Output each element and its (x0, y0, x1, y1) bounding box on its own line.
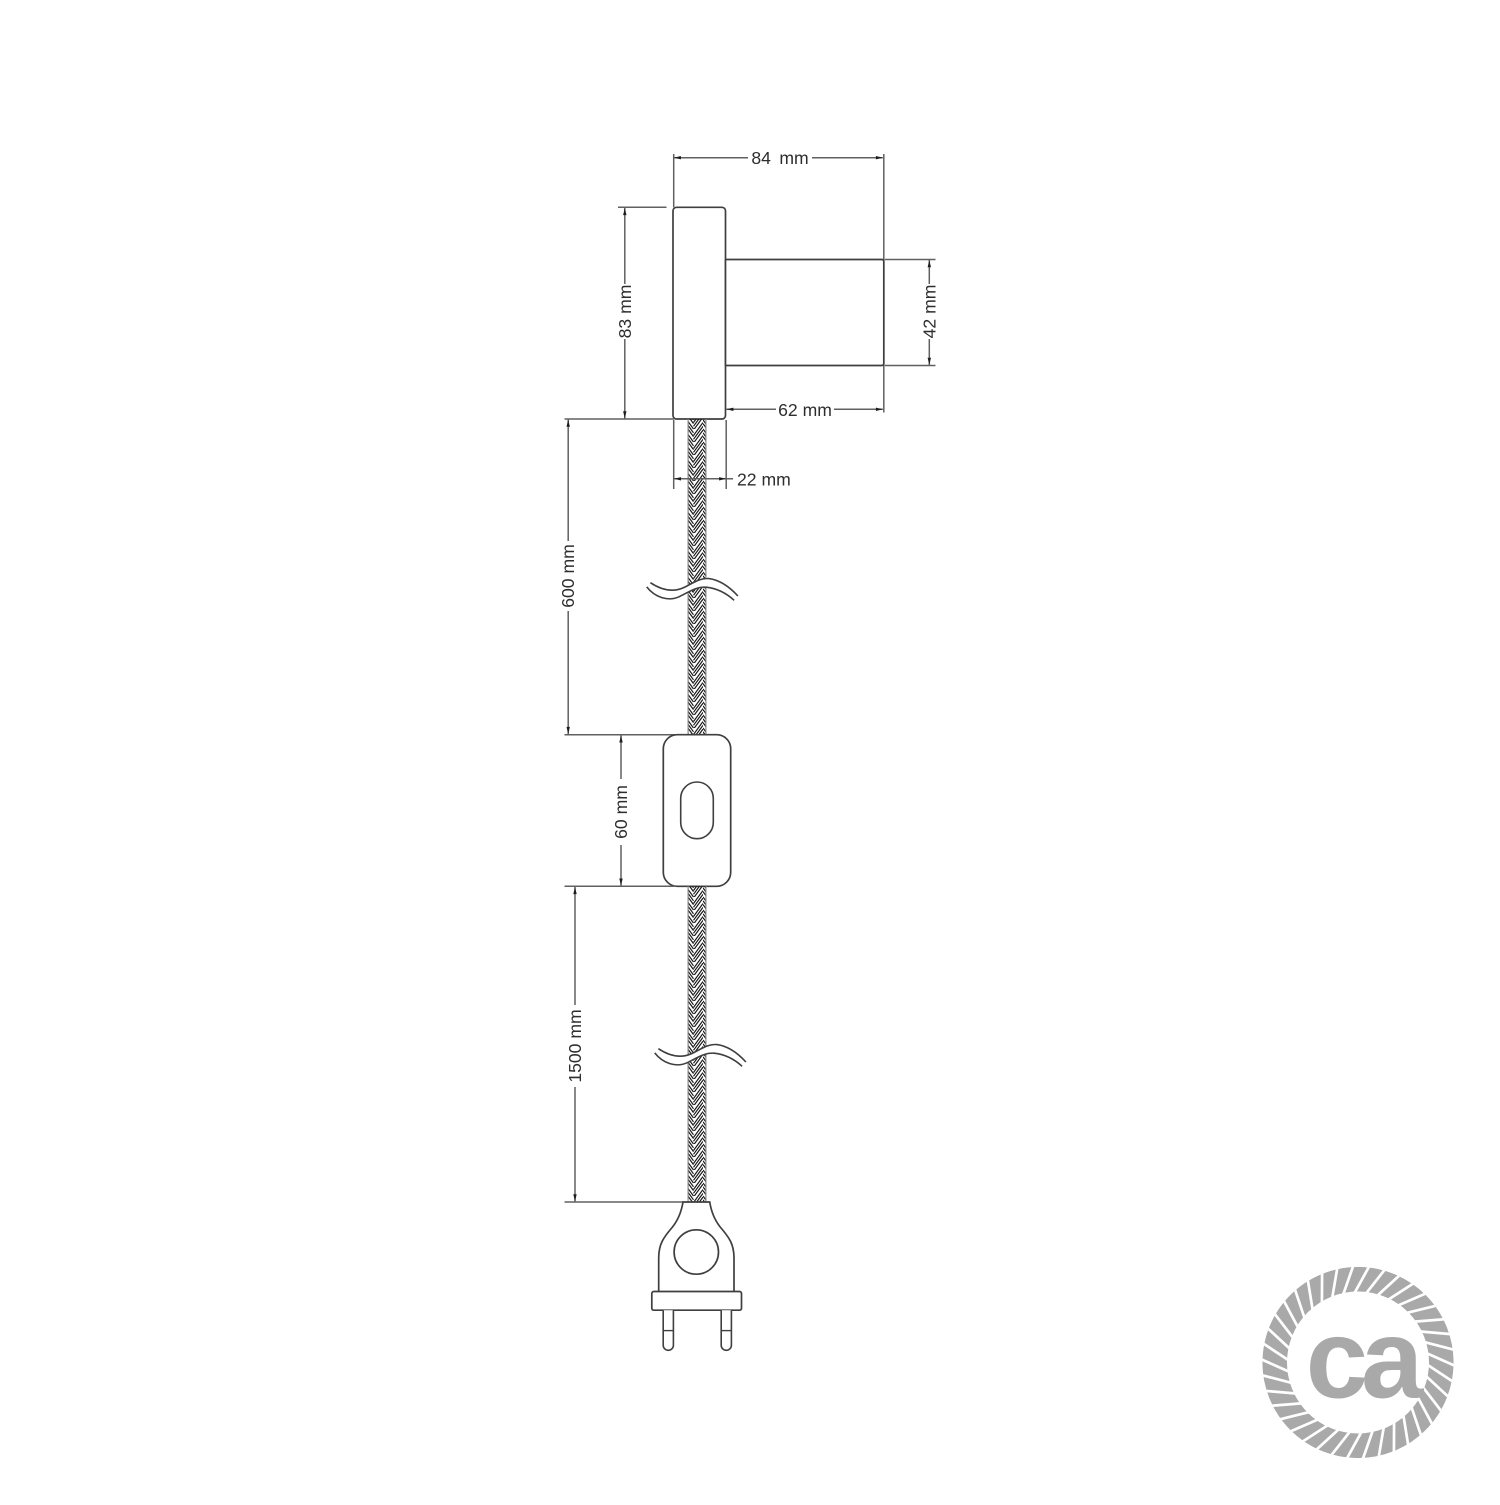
svg-text:1500 mm: 1500 mm (565, 1009, 585, 1082)
svg-text:84 mm: 84 mm (751, 148, 808, 168)
svg-text:83 mm: 83 mm (615, 285, 635, 339)
svg-text:ca: ca (1306, 1297, 1424, 1422)
svg-text:22 mm: 22 mm (737, 469, 791, 489)
svg-text:62 mm: 62 mm (778, 400, 832, 420)
svg-text:42 mm: 42 mm (919, 285, 939, 339)
svg-text:600 mm: 600 mm (558, 544, 578, 608)
svg-text:60 mm: 60 mm (611, 785, 631, 839)
